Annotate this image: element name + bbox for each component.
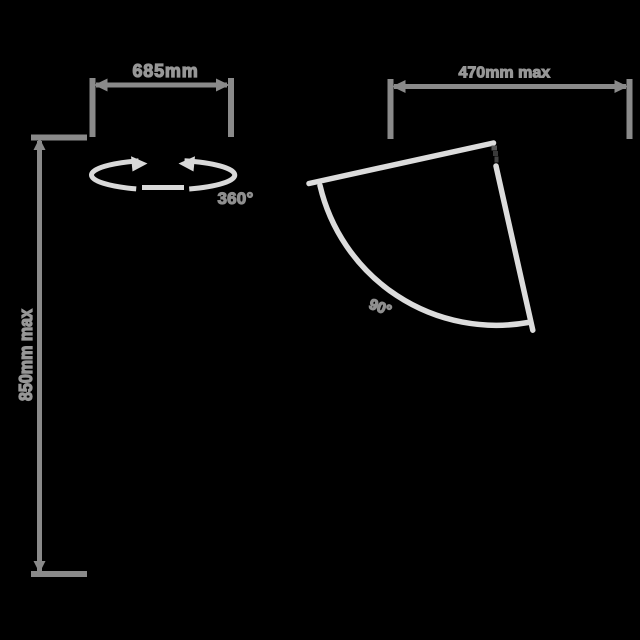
svg-text:360°: 360° xyxy=(218,189,254,208)
svg-text:470mm max: 470mm max xyxy=(459,65,551,82)
svg-text:850mm max: 850mm max xyxy=(16,309,36,401)
svg-text:685mm: 685mm xyxy=(133,61,199,81)
